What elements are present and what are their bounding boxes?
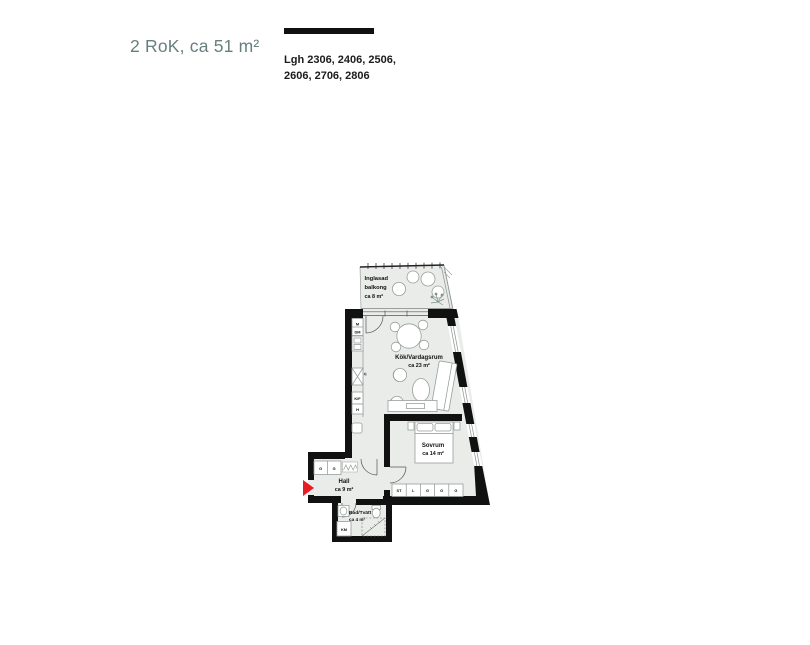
wall-left <box>345 309 352 458</box>
washing-machine-icon: KM <box>337 522 351 537</box>
coffee-table-icon <box>413 379 430 402</box>
closet-label-st: ST <box>397 488 403 493</box>
hall-label: Hall <box>338 479 349 485</box>
hall-closets: G G <box>314 461 341 475</box>
floor-plan: Inglasad balkong ca 8 m² <box>0 0 810 645</box>
bathroom-label: Bad/Tvätt <box>349 510 372 516</box>
wall-bath-right <box>386 499 392 542</box>
nightstand-icon <box>408 422 414 430</box>
balcony-chair-icon <box>392 282 405 295</box>
coat-rack-icon <box>343 462 358 472</box>
living-room-area: ca 23 m² <box>408 363 430 369</box>
dining-chair-icon <box>418 320 428 330</box>
pillow-icon <box>417 424 433 432</box>
closet-label-g: G <box>440 488 443 493</box>
wall-bedroom-top <box>384 414 462 421</box>
kitchen-label-kf: K/F <box>354 396 361 401</box>
nightstand-icon <box>454 422 460 430</box>
bedroom-closet-row: ST L G G G <box>392 484 463 497</box>
bedroom-label: Sovrum <box>422 443 444 449</box>
closet-label-g: G <box>319 466 322 471</box>
wall-bath-bottom <box>332 536 392 542</box>
balcony-chair-icon <box>407 271 419 283</box>
pillow-icon <box>435 424 451 432</box>
closet-label-g: G <box>454 488 457 493</box>
wall-hall-left-upper <box>308 452 314 480</box>
kitchen-label-m: M <box>356 322 359 327</box>
wall-bedroom-left <box>384 418 390 467</box>
hall-area: ca 9 m² <box>335 487 354 493</box>
svg-text:KM: KM <box>341 527 347 532</box>
dining-table-icon <box>397 324 421 348</box>
toilet-icon <box>372 506 381 518</box>
balcony-label: Inglasad <box>365 276 389 282</box>
closet-label-g: G <box>333 466 336 471</box>
kitchen-label-u: U <box>363 373 368 376</box>
balcony-table-icon <box>421 272 435 286</box>
washbasin-icon <box>338 506 349 517</box>
kitchen-label-h: H <box>356 407 359 412</box>
balcony-area: ca 8 m² <box>365 294 384 300</box>
living-room-label: Kök/Vardagsrum <box>395 355 443 361</box>
wall-bottom <box>383 496 468 505</box>
kitchen-stool <box>352 423 362 433</box>
balcony-label: balkong <box>365 285 388 291</box>
kitchen-label-dm: DM <box>354 330 360 335</box>
wall-hall-bottom <box>308 496 341 503</box>
bedroom-area: ca 14 m² <box>422 451 444 457</box>
dining-chair-icon <box>419 340 429 350</box>
closet-label-g: G <box>426 488 429 493</box>
tv-icon <box>407 404 425 409</box>
